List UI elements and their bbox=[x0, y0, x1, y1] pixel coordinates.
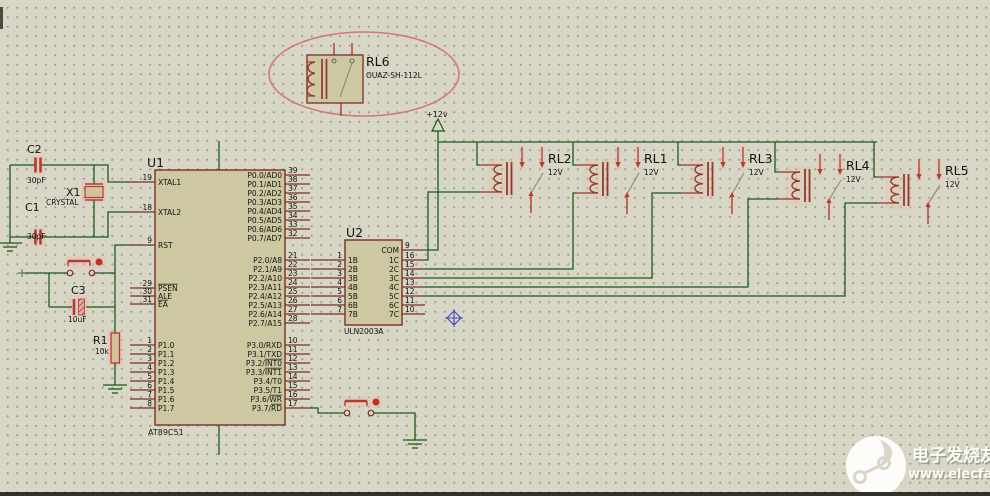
wire bbox=[425, 193, 576, 269]
u1-pin-name: P1.0 bbox=[158, 341, 175, 350]
relay-rl3[interactable]: RL312V bbox=[681, 145, 773, 214]
u1-pin-number: 12 bbox=[288, 354, 298, 363]
u1-pin-name: XTAL1 bbox=[158, 178, 181, 187]
u1-pin-name: P1.2 bbox=[158, 359, 175, 368]
u2-pin-number: 14 bbox=[405, 269, 415, 278]
wire bbox=[115, 245, 130, 333]
u2-pin-name: 5C bbox=[389, 292, 399, 301]
c3-ref: C3 bbox=[71, 284, 86, 297]
u2-pin-number: 11 bbox=[405, 296, 415, 305]
cursor-diamond-icon bbox=[445, 309, 463, 327]
u2-pin-name: 3C bbox=[389, 274, 399, 283]
u1-pin-number: 5 bbox=[147, 372, 152, 381]
u1-pin-name: P1.6 bbox=[158, 395, 175, 404]
wire bbox=[874, 142, 877, 177]
u1-pin-name: P0.5/AD5 bbox=[247, 216, 282, 225]
watermark-url: www.elecfans.com bbox=[908, 467, 990, 482]
u2-pin-name: 2C bbox=[389, 265, 399, 274]
u1-pin-number: 36 bbox=[288, 193, 298, 202]
u2-part: ULN2003A bbox=[344, 327, 384, 336]
u1-pin-number: 24 bbox=[288, 278, 298, 287]
relay-ref: RL1 bbox=[644, 151, 668, 166]
u1-pin-number: 3 bbox=[147, 354, 152, 363]
u1-pin-number: 14 bbox=[288, 372, 298, 381]
u1-pin-name: P3.6/WR bbox=[250, 395, 282, 404]
u1-pin-name: P3.4/T0 bbox=[254, 377, 283, 386]
u2-pin-name: 1B bbox=[348, 256, 358, 265]
x1-part: CRYSTAL bbox=[46, 198, 79, 207]
wire bbox=[678, 142, 681, 165]
u2-pin-name: 6B bbox=[348, 301, 358, 310]
u2-pin-name: 4C bbox=[389, 283, 399, 292]
c1-ref: C1 bbox=[25, 201, 40, 214]
capacitor-c1[interactable]: C1 30pF bbox=[25, 201, 46, 245]
ground-icon bbox=[403, 440, 427, 448]
u2-pin-number: 4 bbox=[337, 278, 342, 287]
wire bbox=[573, 142, 576, 165]
u2-pin-name: 1C bbox=[389, 256, 399, 265]
power-label: +12v bbox=[426, 110, 448, 119]
u1-pin-number: 19 bbox=[142, 173, 152, 182]
u2-pin-number: 1 bbox=[337, 251, 342, 260]
u2-pin-number: 6 bbox=[337, 296, 342, 305]
wire bbox=[41, 165, 130, 182]
u1-pin-name: P3.3/INT1 bbox=[246, 368, 282, 377]
u1-pin-name: P2.6/A14 bbox=[248, 310, 282, 319]
u1-pin-number: 4 bbox=[147, 363, 152, 372]
u1-pin-name: P1.1 bbox=[158, 350, 175, 359]
u1-pin-number: 28 bbox=[288, 314, 298, 323]
u2-pin-name: COM bbox=[381, 246, 399, 255]
ground-icon bbox=[0, 243, 22, 251]
relay-ref: RL2 bbox=[548, 151, 572, 166]
wire bbox=[425, 131, 438, 250]
u1-pin-name: P3.0/RXD bbox=[247, 341, 282, 350]
edge-artifact bbox=[0, 7, 3, 29]
u2-pin-number: 10 bbox=[405, 305, 415, 314]
u2-pin-number: 7 bbox=[337, 305, 342, 314]
u1-pin-name: P0.4/AD4 bbox=[247, 207, 282, 216]
u1-pin-number: 18 bbox=[142, 203, 152, 212]
u2-ref: U2 bbox=[346, 225, 363, 240]
u1-pin-number: 1 bbox=[147, 336, 152, 345]
watermark-name: 电子发烧友 bbox=[912, 445, 990, 466]
u1-ref: U1 bbox=[147, 155, 164, 170]
u1-pin-number: 31 bbox=[142, 295, 152, 304]
u1-pin-number: 35 bbox=[288, 202, 298, 211]
u1-pin-name: P3.5/T1 bbox=[254, 386, 283, 395]
wire bbox=[425, 199, 778, 287]
rl6-ref: RL6 bbox=[366, 54, 390, 69]
u2-pin-number: 13 bbox=[405, 278, 415, 287]
wire bbox=[477, 142, 480, 165]
u2-pin-name: 2B bbox=[348, 265, 358, 274]
u1-pin-name: P2.5/A13 bbox=[248, 301, 282, 310]
relay-value: 12V bbox=[846, 175, 862, 184]
u1-pin-name: P0.0/AD0 bbox=[247, 171, 282, 180]
u1-pin-name: P2.1/A9 bbox=[253, 265, 282, 274]
u1-pin-name: P2.2/A10 bbox=[248, 274, 282, 283]
schematic-canvas[interactable]: RL6 OUAZ-SH-112L +12v C2 30pF C1 30pF X1… bbox=[0, 0, 990, 496]
u2-pin-name: 7B bbox=[348, 310, 358, 319]
u1-pin-name: P0.1/AD1 bbox=[247, 180, 282, 189]
u1-pin-name: P0.6/AD6 bbox=[247, 225, 282, 234]
u1-pin-number: 17 bbox=[288, 399, 298, 408]
u2-pin-number: 2 bbox=[337, 260, 342, 269]
u2-pin-number: 12 bbox=[405, 287, 415, 296]
watermark: 电子发烧友 电子发烧友 www.elecfans.com www.elecfan… bbox=[846, 436, 990, 496]
wires bbox=[0, 131, 877, 455]
u1-pin-name: P3.2/INT0 bbox=[246, 359, 282, 368]
u1-pin-name: P0.2/AD2 bbox=[247, 189, 282, 198]
u1-pin-number: 32 bbox=[288, 229, 298, 238]
u1-pin-name: XTAL2 bbox=[158, 208, 181, 217]
r1-value: 10k bbox=[95, 347, 110, 356]
relay-rl2[interactable]: RL212V bbox=[480, 145, 572, 213]
u1-pin-name: EA bbox=[158, 300, 169, 309]
u1-pin-number: 2 bbox=[147, 345, 152, 354]
u1-pin-number: 38 bbox=[288, 175, 298, 184]
power-terminal[interactable]: +12v bbox=[426, 110, 448, 131]
u1-pin-name: P2.0/A8 bbox=[253, 256, 282, 265]
relay-value: 12V bbox=[749, 168, 765, 177]
u1-pin-number: 34 bbox=[288, 211, 298, 220]
u1-pin-number: 27 bbox=[288, 305, 298, 314]
u2-pin-number: 5 bbox=[337, 287, 342, 296]
relay-value: 12V bbox=[945, 180, 961, 189]
u1-pin-number: 7 bbox=[147, 390, 152, 399]
r1-ref: R1 bbox=[93, 334, 108, 347]
c2-value: 30pF bbox=[27, 176, 46, 185]
u2-pin-number: 3 bbox=[337, 269, 342, 278]
u1-pin-number: 13 bbox=[288, 363, 298, 372]
u1-pin-number: 9 bbox=[147, 236, 152, 245]
u2-chip[interactable]: U2 ULN2003A 11B22B33B44B55B66B77B9COM161… bbox=[311, 225, 425, 336]
button-dot bbox=[96, 259, 103, 266]
u1-pin-number: 8 bbox=[147, 399, 152, 408]
wire bbox=[374, 413, 415, 440]
u1-pin-number: 11 bbox=[288, 345, 298, 354]
c1-value: 30pF bbox=[27, 232, 46, 241]
c2-ref: C2 bbox=[27, 143, 42, 156]
u1-pin-number: 26 bbox=[288, 296, 298, 305]
wire bbox=[41, 212, 130, 237]
u2-pin-number: 15 bbox=[405, 260, 415, 269]
relay-rl5[interactable]: RL512V bbox=[877, 157, 969, 224]
u1-pin-name: P2.3/A11 bbox=[248, 283, 282, 292]
u1-pin-name: P3.7/RD bbox=[252, 404, 282, 413]
u1-pin-name: P1.5 bbox=[158, 386, 175, 395]
u2-pin-name: 7C bbox=[389, 310, 399, 319]
u1-pin-name: RST bbox=[158, 241, 173, 250]
wire bbox=[310, 408, 344, 413]
wire bbox=[425, 193, 681, 278]
u2-pin-name: 5B bbox=[348, 292, 358, 301]
c3-value: 10uF bbox=[68, 315, 87, 324]
ground-icon bbox=[103, 385, 127, 393]
u1-pin-number: 16 bbox=[288, 390, 298, 399]
u1-pin-name: P2.4/A12 bbox=[248, 292, 282, 301]
wire bbox=[425, 203, 877, 296]
u1-pin-number: 37 bbox=[288, 184, 298, 193]
window-edge bbox=[0, 492, 990, 496]
terminal-cross-icon bbox=[18, 269, 26, 277]
relay-value: 12V bbox=[548, 168, 564, 177]
u1-pin-name: P0.7/AD7 bbox=[247, 234, 282, 243]
u1-pin-name: P1.7 bbox=[158, 404, 175, 413]
relay-value: 12V bbox=[644, 168, 660, 177]
rl6-part: OUAZ-SH-112L bbox=[366, 71, 423, 80]
relay-rl4[interactable]: RL412V bbox=[778, 152, 870, 220]
u1-pin-number: 22 bbox=[288, 260, 298, 269]
relay-ref: RL5 bbox=[945, 163, 969, 178]
u1-pin-name: P0.3/AD3 bbox=[247, 198, 282, 207]
u2-pin-name: 6C bbox=[389, 301, 399, 310]
u1-pin-name: P3.1/TXD bbox=[248, 350, 283, 359]
elecfans-logo-icon bbox=[846, 436, 906, 496]
u2-pin-number: 9 bbox=[405, 241, 410, 250]
relay-rl6[interactable]: RL6 OUAZ-SH-112L bbox=[307, 43, 423, 116]
u2-pin-number: 16 bbox=[405, 251, 415, 260]
u1-pin-name: P1.4 bbox=[158, 377, 175, 386]
u1-chip[interactable]: U1 AT89C51 19XTAL118XTAL29RST29PSEN30ALE… bbox=[130, 155, 310, 437]
relay-ref: RL4 bbox=[846, 158, 870, 173]
u2-pin-name: 4B bbox=[348, 283, 358, 292]
u1-pin-number: 10 bbox=[288, 336, 298, 345]
u1-pin-number: 23 bbox=[288, 269, 298, 278]
relay-rl1[interactable]: RL112V bbox=[576, 145, 668, 214]
u1-pin-39[interactable]: 39P0.0/AD0 bbox=[247, 166, 310, 180]
u1-pin-number: 21 bbox=[288, 251, 298, 260]
u1-pin-number: 25 bbox=[288, 287, 298, 296]
u1-pin-number: 33 bbox=[288, 220, 298, 229]
u1-pin-name: P1.3 bbox=[158, 368, 175, 377]
button-dot bbox=[373, 399, 380, 406]
u1-pin-number: 39 bbox=[288, 166, 298, 175]
u1-pin-name: P2.7/A15 bbox=[248, 319, 282, 328]
annotation-ellipse bbox=[269, 32, 459, 116]
relay-ref: RL3 bbox=[749, 151, 773, 166]
u1-pin-number: 6 bbox=[147, 381, 152, 390]
u1-part: AT89C51 bbox=[148, 428, 184, 437]
u2-pin-name: 3B bbox=[348, 274, 358, 283]
wire bbox=[775, 142, 778, 172]
u1-pin-number: 15 bbox=[288, 381, 298, 390]
resistor-r1[interactable]: R1 10k bbox=[93, 333, 120, 363]
